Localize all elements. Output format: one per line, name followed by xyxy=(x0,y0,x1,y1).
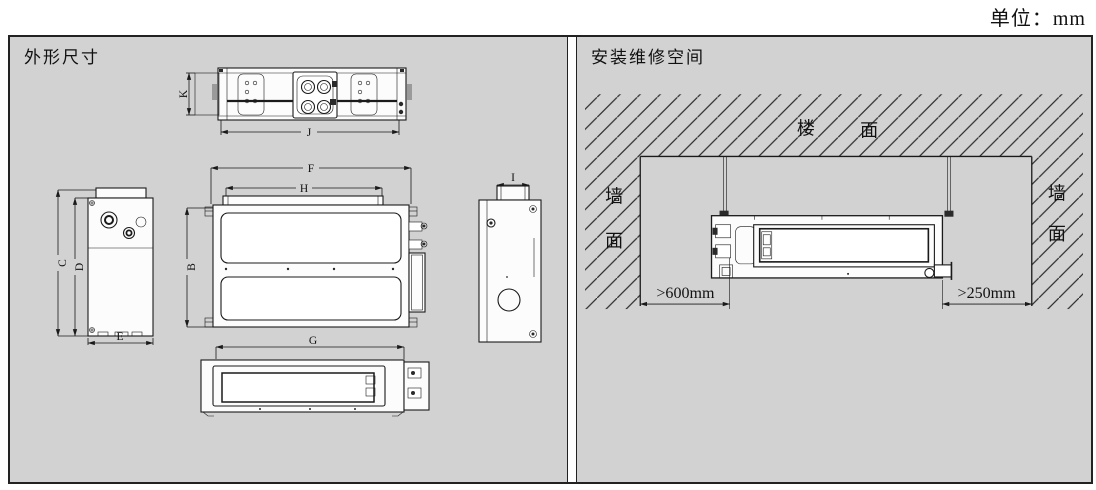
dim-label-H: H xyxy=(300,183,308,195)
indoor-unit-drawing xyxy=(712,216,952,280)
hanger-rod-left xyxy=(720,156,729,216)
dimension-H: H xyxy=(226,183,382,197)
hanger-rod-right xyxy=(944,156,953,216)
left-wall-label-char1: 墙 xyxy=(605,187,623,207)
dimension-D: D xyxy=(74,198,88,336)
dim-label-B: B xyxy=(186,263,198,271)
ceiling-label-char2: 面 xyxy=(860,120,878,140)
installation-panel: 安装维修空间 楼 面 xyxy=(576,37,1091,482)
dim-label-C: C xyxy=(57,259,69,267)
right-wall-label-char2: 面 xyxy=(1048,224,1066,244)
left-side-view-drawing: C D E xyxy=(57,188,153,345)
units-label: 单位：mm xyxy=(990,2,1086,31)
pipe-connection-assembly xyxy=(293,72,337,118)
dimensions-drawing: K J xyxy=(10,37,567,482)
dim-label-E: E xyxy=(116,331,123,343)
dim-label-J: J xyxy=(307,127,312,139)
left-clearance-label: >600mm xyxy=(656,285,715,302)
right-clearance-label: >250mm xyxy=(958,285,1017,302)
right-wall-label-char1: 墙 xyxy=(1048,184,1066,204)
ceiling-label-char1: 楼 xyxy=(797,118,815,138)
unit-outlet-opening xyxy=(760,229,929,262)
dim-label-K: K xyxy=(178,89,190,98)
dim-label-D: D xyxy=(74,263,86,271)
dimension-J: J xyxy=(221,120,399,139)
left-wall-label-char2: 面 xyxy=(605,231,623,251)
air-outlet-opening xyxy=(222,373,374,402)
installation-drawing: 楼 面 墙 面 墙 面 xyxy=(577,37,1091,482)
right-clearance-dimension: >250mm xyxy=(942,280,1031,309)
front-view-drawing: G xyxy=(201,335,429,416)
right-side-view-drawing: I xyxy=(479,172,541,342)
dimensions-panel: 外形尺寸 xyxy=(10,37,568,482)
refrigerant-pipes xyxy=(409,222,427,249)
drawing-sheet: 单位：mm 外形尺寸 xyxy=(0,0,1096,490)
dim-label-F: F xyxy=(308,163,314,175)
dimension-B: B xyxy=(186,208,213,327)
dim-label-I: I xyxy=(511,172,515,184)
top-view-drawing: K J xyxy=(178,68,412,139)
plan-view-drawing: F H xyxy=(186,163,427,327)
drawing-frame: 外形尺寸 xyxy=(8,35,1093,484)
dim-label-G: G xyxy=(309,335,317,347)
panel-divider xyxy=(568,37,576,482)
ceiling-slab-hatch xyxy=(585,94,1083,156)
installation-panel-title: 安装维修空间 xyxy=(591,43,705,68)
dimension-G: G xyxy=(216,335,404,359)
dimensions-panel-title: 外形尺寸 xyxy=(24,43,100,68)
